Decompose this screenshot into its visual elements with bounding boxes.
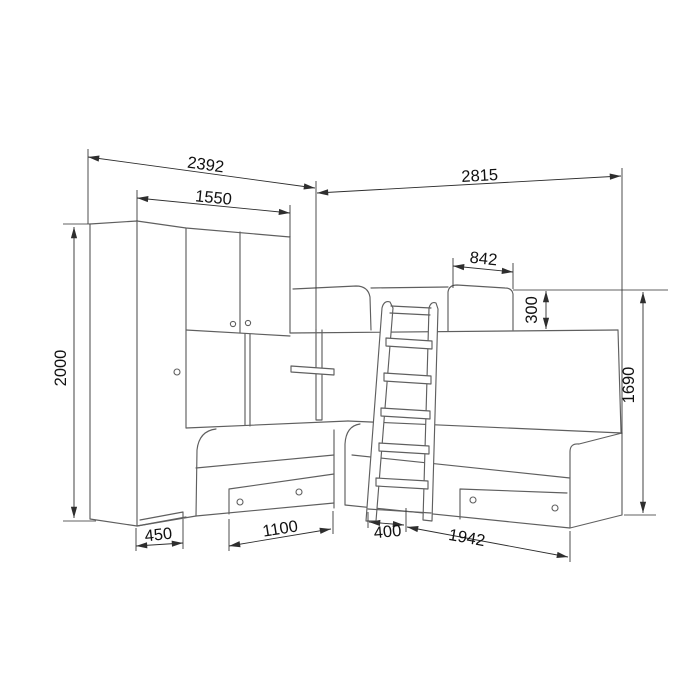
ladder-base	[368, 509, 431, 513]
dim-label-bunk-height: 1690	[620, 367, 638, 404]
bunk-back-rail	[371, 287, 448, 288]
wall-shelf	[291, 366, 334, 375]
right-bed-drawer-top	[460, 489, 567, 519]
wardrobe-bottom-edge	[90, 517, 186, 526]
furniture-dimension-drawing: 2392 1550 2815 842 300 2000 1690 450 110…	[0, 0, 700, 700]
left-bed-backrest-top	[186, 421, 348, 428]
right-bed-drawer-knob-2	[552, 505, 558, 511]
left-bed-drawer-knob-2	[296, 489, 302, 495]
bunk-left-guard-rail	[293, 286, 371, 330]
upper-bunk	[290, 285, 621, 432]
cabinet-right-door-knob	[245, 320, 250, 325]
dim-label-cabinets-width: 1550	[194, 187, 232, 208]
dim-label-right-bed-length: 1942	[447, 526, 486, 550]
dim-label-right-section-width: 2815	[461, 166, 499, 186]
lower-left-bed	[137, 421, 348, 526]
lower-right-bed	[345, 421, 622, 528]
left-bed-drawer-knob-1	[237, 499, 243, 505]
left-bed-armrest	[196, 429, 216, 516]
left-bed-seat-line	[196, 455, 334, 468]
dimension-annotations: 2392 1550 2815 842 300 2000 1690 450 110…	[52, 149, 668, 562]
ladder-top-hook	[390, 306, 431, 315]
overhead-cabinets	[186, 232, 290, 426]
dim-label-wardrobe-height: 2000	[52, 350, 70, 387]
ladder-rung-2	[384, 373, 431, 384]
technical-drawing-page: 2392 1550 2815 842 300 2000 1690 450 110…	[0, 0, 700, 700]
cabinet-bottom-edge	[186, 330, 290, 336]
bunk-platform-edge	[290, 330, 618, 333]
right-bed-foot-side	[570, 434, 622, 528]
ladder-rung-4	[379, 443, 429, 454]
wardrobe-door-knob	[174, 369, 180, 375]
ladder-rung-5	[376, 478, 428, 489]
dim-label-ladder-width: 400	[373, 522, 402, 542]
cabinet-left-door-knob	[230, 321, 235, 326]
bunk-headboard	[448, 285, 513, 331]
right-bed-backrest-top	[348, 421, 622, 433]
dim-label-headboard-height: 300	[523, 296, 541, 324]
bunk-corner-leg	[316, 330, 322, 420]
left-bed-bottom-edge	[196, 503, 334, 516]
right-bed-foot-top	[570, 433, 622, 452]
right-bed-armrest	[345, 424, 360, 505]
dim-label-wardrobe-depth: 450	[144, 525, 173, 546]
dim-line-1942	[407, 527, 568, 557]
ladder	[366, 302, 438, 521]
ladder-rung-3	[381, 408, 430, 419]
dim-label-headboard-width: 842	[469, 249, 498, 270]
right-bed-seat-line	[352, 455, 570, 478]
dim-label-left-section-width: 2392	[186, 154, 225, 177]
ladder-rung-1	[386, 338, 432, 349]
wardrobe	[90, 221, 290, 526]
cabinet-support-panel	[245, 334, 250, 426]
wardrobe-cabinet-top-edge	[90, 221, 290, 237]
dim-label-left-bed-length: 1100	[261, 517, 299, 540]
right-bed-drawer-knob-1	[470, 497, 476, 503]
